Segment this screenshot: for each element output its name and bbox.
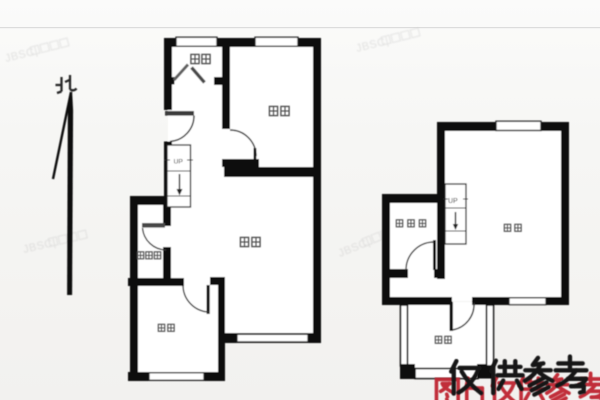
svg-text:UP: UP bbox=[174, 159, 184, 166]
svg-text:UP: UP bbox=[448, 198, 458, 205]
